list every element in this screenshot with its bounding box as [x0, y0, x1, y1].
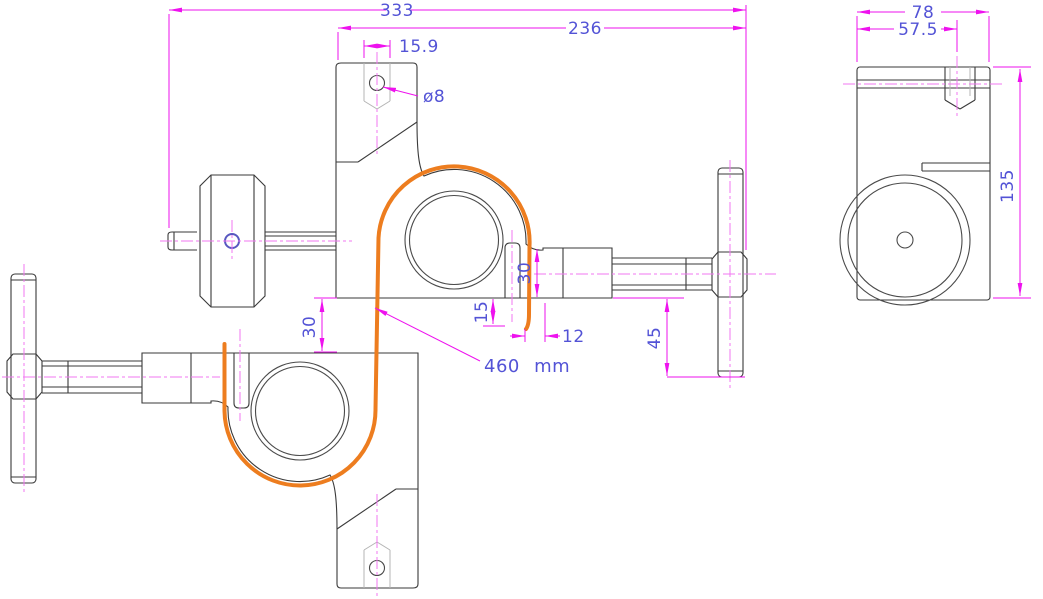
- dim-clamp-gap: 30: [300, 298, 337, 352]
- side-view: 78 57.5 135: [840, 3, 1031, 305]
- technical-drawing: 333 236 15.9 ø8 30: [0, 0, 1043, 599]
- lower-pulley-wheel: [251, 362, 349, 460]
- dim-label-side-height: 135: [998, 169, 1018, 203]
- side-groove: [922, 163, 990, 171]
- side-centerlines: [843, 56, 1002, 118]
- dim-label-cable-length: 460 mm: [484, 356, 570, 377]
- dim-overall-width: 333: [169, 1, 746, 250]
- dim-label-handle-drop: 45: [645, 327, 665, 350]
- lower-screw-handle: [7, 274, 142, 483]
- lower-clamp-assembly: [2, 264, 418, 596]
- dim-cable-to-block: 12: [510, 303, 585, 347]
- upper-body-chamfer-edge: [358, 122, 417, 162]
- dim-label-cable-to-block: 12: [562, 327, 585, 347]
- side-body: [857, 67, 990, 300]
- front-dimensions: 333 236 15.9 ø8 30: [169, 1, 746, 377]
- dim-label-upper-width: 236: [568, 19, 602, 39]
- dim-hole-diameter: ø8: [383, 87, 445, 107]
- lower-body-chamfer-edge: [337, 489, 396, 529]
- dim-label-slot-width: 15.9: [399, 37, 439, 57]
- side-dimensions: 78 57.5 135: [857, 3, 1031, 298]
- lower-clamp-jaw: [234, 353, 249, 408]
- dim-label-side-slot-offset: 57.5: [898, 20, 938, 40]
- side-pulley-wheel: [840, 175, 970, 305]
- lower-centerlines: [2, 264, 377, 596]
- dim-label-overall-width: 333: [380, 1, 414, 21]
- dim-label-cable-tail-offset: 15: [472, 301, 492, 324]
- upper-screw-handle: [612, 168, 747, 377]
- upper-centerlines: [160, 52, 776, 390]
- dim-cable-tail-offset: 15: [472, 299, 505, 326]
- dim-label-block-height: 30: [515, 262, 535, 285]
- upper-clamp-assembly: [160, 52, 776, 390]
- upper-pulley-wheel: [405, 191, 503, 289]
- dim-handle-drop: 45: [613, 298, 745, 377]
- dim-side-height: 135: [993, 67, 1031, 298]
- cad-drawing-canvas: 333 236 15.9 ø8 30: [0, 0, 1043, 599]
- side-axle-hole: [897, 232, 913, 248]
- dim-slot-width: 15.9: [364, 37, 439, 58]
- dim-side-slot-offset: 57.5: [857, 20, 957, 52]
- dim-label-hole-diameter: ø8: [423, 87, 445, 107]
- dim-label-clamp-gap: 30: [300, 316, 320, 339]
- dim-block-height: 30: [515, 249, 537, 297]
- front-view: 333 236 15.9 ø8 30: [2, 1, 776, 596]
